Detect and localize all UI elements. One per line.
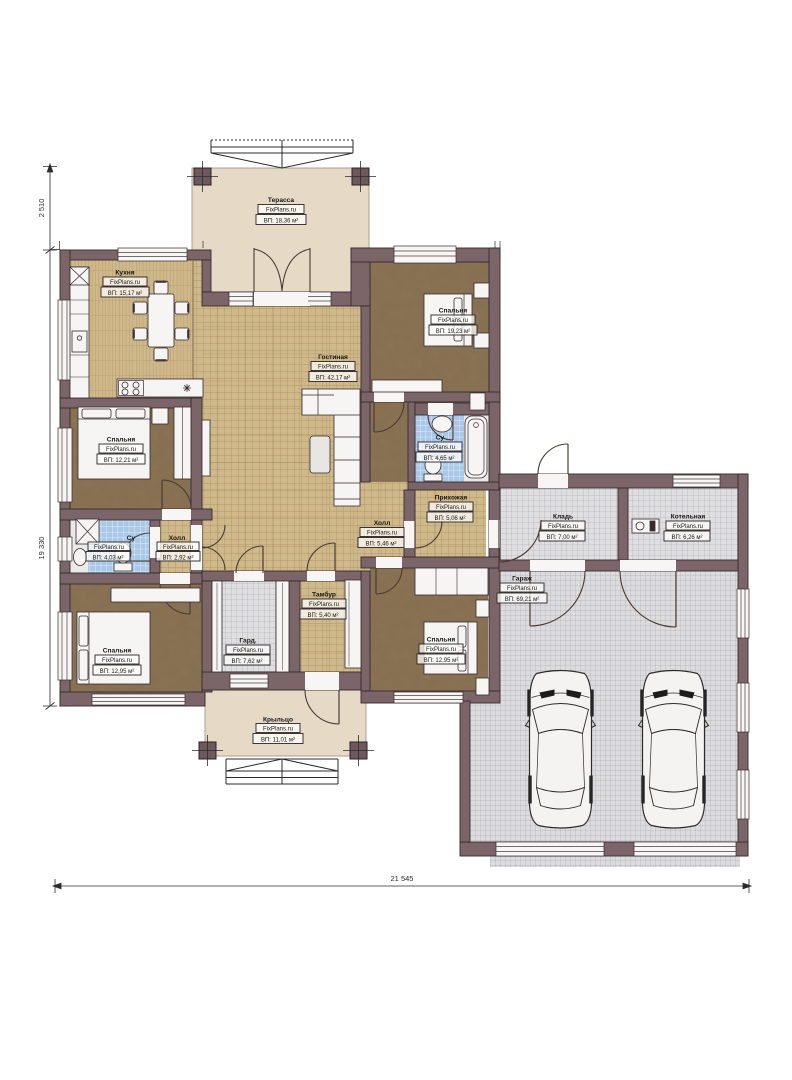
svg-text:FixPlans.ru: FixPlans.ru bbox=[106, 447, 136, 453]
svg-text:Спальня: Спальня bbox=[107, 437, 136, 444]
svg-text:Гостиная: Гостиная bbox=[318, 354, 348, 361]
svg-text:19 330: 19 330 bbox=[37, 537, 46, 560]
svg-text:FixPlans.ru: FixPlans.ru bbox=[110, 280, 140, 286]
svg-text:2 510: 2 510 bbox=[37, 199, 46, 218]
svg-text:FixPlans.ru: FixPlans.ru bbox=[266, 208, 296, 214]
svg-text:Тамбур: Тамбур bbox=[312, 591, 336, 599]
svg-text:ВП: 12,95 м²: ВП: 12,95 м² bbox=[424, 658, 458, 664]
svg-text:ВП: 15,17 м²: ВП: 15,17 м² bbox=[108, 291, 142, 297]
svg-text:FixPlans.ru: FixPlans.ru bbox=[309, 602, 339, 608]
svg-text:FixPlans.ru: FixPlans.ru bbox=[102, 658, 132, 664]
svg-text:ВП: 42,17 м²: ВП: 42,17 м² bbox=[316, 376, 350, 382]
svg-text:Гараж: Гараж bbox=[512, 576, 532, 583]
svg-text:FixPlans.ru: FixPlans.ru bbox=[94, 545, 124, 551]
svg-text:FixPlans.ru: FixPlans.ru bbox=[425, 445, 455, 451]
svg-text:ВП: 12,21 м²: ВП: 12,21 м² bbox=[104, 458, 138, 464]
svg-text:FixPlans.ru: FixPlans.ru bbox=[507, 586, 537, 592]
svg-text:ВП: 5,06 м²: ВП: 5,06 м² bbox=[434, 516, 465, 522]
svg-text:FixPlans.ru: FixPlans.ru bbox=[673, 524, 703, 530]
svg-text:ВП: 5,40 м²: ВП: 5,40 м² bbox=[307, 613, 338, 619]
svg-text:Кухня: Кухня bbox=[115, 270, 134, 277]
svg-text:Холл: Холл bbox=[374, 520, 391, 527]
svg-text:ВП: 18,36 м²: ВП: 18,36 м² bbox=[264, 219, 298, 225]
svg-text:Терасса: Терасса bbox=[268, 197, 294, 204]
svg-text:Котельная: Котельная bbox=[671, 514, 706, 521]
svg-text:FixPlans.ru: FixPlans.ru bbox=[438, 318, 468, 324]
svg-text:Су: Су bbox=[127, 535, 136, 542]
svg-text:FixPlans.ru: FixPlans.ru bbox=[233, 648, 263, 654]
svg-text:Гард.: Гард. bbox=[239, 638, 256, 645]
svg-text:ВП: 4,03 м²: ВП: 4,03 м² bbox=[92, 556, 123, 562]
svg-text:ВП: 7,62 м²: ВП: 7,62 м² bbox=[231, 659, 262, 665]
svg-text:Прихожая: Прихожая bbox=[435, 495, 468, 502]
svg-text:FixPlans.ru: FixPlans.ru bbox=[367, 531, 397, 537]
svg-text:Спальня: Спальня bbox=[103, 648, 132, 655]
svg-text:Кладь: Кладь bbox=[553, 514, 573, 521]
svg-text:FixPlans.ru: FixPlans.ru bbox=[163, 545, 193, 551]
svg-text:ВП: 11,01 м²: ВП: 11,01 м² bbox=[261, 738, 295, 744]
svg-text:FixPlans.ru: FixPlans.ru bbox=[426, 647, 456, 653]
svg-text:Крыльцо: Крыльцо bbox=[263, 717, 293, 724]
svg-text:ВП: 6,26 м²: ВП: 6,26 м² bbox=[671, 535, 702, 541]
svg-text:Спальня: Спальня bbox=[427, 637, 456, 644]
svg-text:ВП: 69,21 м²: ВП: 69,21 м² bbox=[505, 597, 539, 603]
svg-text:ВП: 2,92 м²: ВП: 2,92 м² bbox=[162, 556, 193, 562]
svg-text:FixPlans.ru: FixPlans.ru bbox=[436, 505, 466, 511]
svg-text:FixPlans.ru: FixPlans.ru bbox=[548, 524, 578, 530]
svg-text:FixPlans.ru: FixPlans.ru bbox=[318, 365, 348, 371]
svg-text:ВП: 12,95 м²: ВП: 12,95 м² bbox=[100, 669, 134, 675]
svg-text:ВП: 7,00 м²: ВП: 7,00 м² bbox=[546, 535, 577, 541]
svg-text:Су: Су bbox=[436, 435, 445, 442]
svg-text:ВП: 4,65 м²: ВП: 4,65 м² bbox=[423, 456, 454, 462]
svg-text:ВП: 5,46 м²: ВП: 5,46 м² bbox=[365, 542, 396, 548]
svg-text:Холл: Холл bbox=[169, 535, 186, 542]
svg-text:FixPlans.ru: FixPlans.ru bbox=[263, 727, 293, 733]
svg-text:Спальня: Спальня bbox=[439, 308, 468, 315]
svg-text:ВП: 19,23 м²: ВП: 19,23 м² bbox=[436, 329, 470, 335]
svg-text:21 545: 21 545 bbox=[391, 874, 414, 883]
